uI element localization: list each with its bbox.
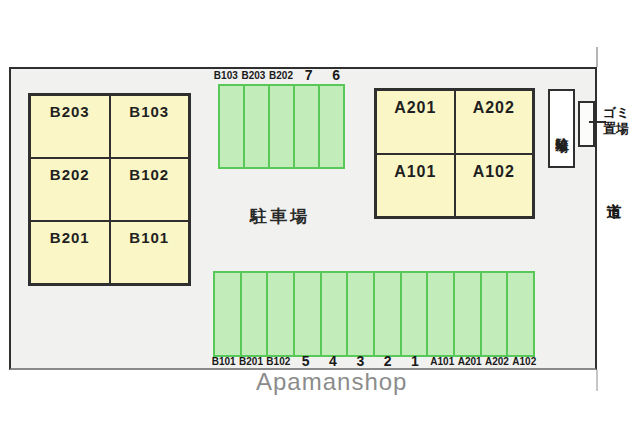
parking-stall	[268, 84, 295, 169]
unit-b101: B101	[110, 221, 190, 284]
top-stall-label: B203	[240, 70, 268, 82]
top-stall-label: 7	[295, 69, 323, 82]
bottom-stall-label: 5	[292, 355, 319, 368]
parking-stall	[218, 84, 245, 169]
parking-stall	[266, 271, 295, 357]
unit-b203: B203	[30, 95, 110, 158]
parking-stall	[240, 271, 269, 357]
top-stall-labels: B103 B203 B202 7 6	[212, 68, 350, 82]
bottom-parking-stalls	[213, 271, 535, 357]
bottom-stall-label: 3	[347, 355, 374, 368]
parking-stall	[213, 271, 242, 357]
top-stall-label: B103	[212, 70, 240, 82]
bottom-stall-label: 2	[374, 355, 401, 368]
building-a-block: A201 A202 A101 A102	[374, 88, 535, 219]
unit-b102: B102	[110, 158, 190, 221]
parking-stall	[453, 271, 482, 357]
garbage-area-box	[578, 101, 595, 147]
bottom-stall-label: A102	[511, 356, 538, 368]
unit-b103: B103	[110, 95, 190, 158]
building-b-block: B203 B103 B202 B102 B201 B101	[28, 93, 191, 286]
road-boundary-line-top	[596, 47, 598, 67]
city-road-label: 市道	[604, 190, 623, 234]
top-stall-label: B202	[267, 70, 295, 82]
bicycle-parking-box: 駐輪場	[548, 89, 575, 168]
unit-b201: B201	[30, 221, 110, 284]
unit-a201: A201	[376, 90, 455, 154]
parking-lot-label: 駐車場	[228, 205, 332, 228]
garbage-area-label: ゴミ置場	[603, 105, 635, 137]
bottom-stall-label: A101	[429, 356, 456, 368]
unit-a202: A202	[455, 90, 534, 154]
parking-stall	[293, 271, 322, 357]
bottom-stall-label: B101	[210, 356, 237, 368]
parking-stall	[318, 84, 345, 169]
parking-stall	[346, 271, 375, 357]
parking-stall	[506, 271, 535, 357]
unit-a102: A102	[455, 154, 534, 218]
parking-stall	[480, 271, 509, 357]
bottom-stall-label: 4	[319, 355, 346, 368]
bottom-stall-label: B201	[237, 356, 264, 368]
parking-stall	[243, 84, 270, 169]
bottom-stall-label: A202	[483, 356, 510, 368]
bottom-stall-label: 1	[401, 355, 428, 368]
bottom-stall-label: B102	[265, 356, 292, 368]
parking-stall	[426, 271, 455, 357]
bottom-stall-label: A201	[456, 356, 483, 368]
parking-stall	[320, 271, 349, 357]
parking-stall	[293, 84, 320, 169]
road-boundary-line-bottom	[596, 370, 598, 391]
parking-stall	[400, 271, 429, 357]
bottom-stall-labels: B101 B201 B102 5 4 3 2 1 A101 A201 A202 …	[210, 354, 538, 368]
unit-b202: B202	[30, 158, 110, 221]
site-plan-image: B203 B103 B202 B102 B201 B101 A201 A202 …	[0, 0, 640, 427]
apamanshop-watermark: Apamanshop	[256, 368, 407, 396]
unit-a101: A101	[376, 154, 455, 218]
top-parking-stalls	[218, 84, 345, 169]
top-stall-label: 6	[322, 69, 350, 82]
parking-stall	[373, 271, 402, 357]
